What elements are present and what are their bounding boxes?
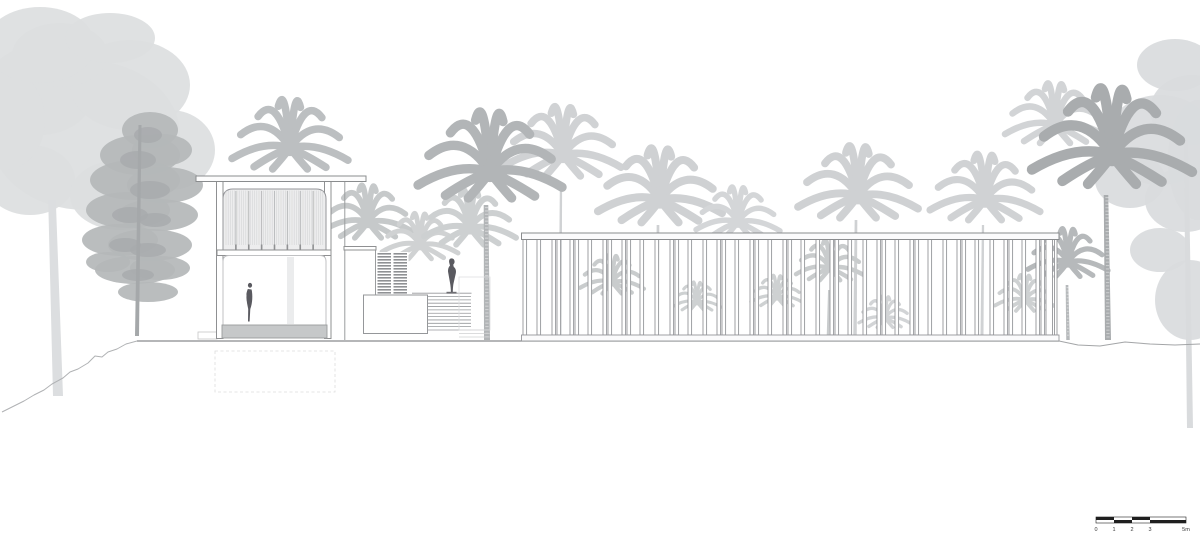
- colonnade-beam: [522, 233, 1060, 240]
- statue: [447, 258, 457, 293]
- colonnade-post: [750, 240, 754, 336]
- colonnade-post: [655, 240, 659, 336]
- colonnade-post: [1004, 240, 1008, 336]
- elevation-canvas: 01235m: [0, 0, 1200, 543]
- colonnade-post: [570, 240, 574, 336]
- colonnade-post: [816, 240, 820, 336]
- colonnade-post: [910, 240, 914, 336]
- colonnade-end-post: [1055, 240, 1058, 336]
- colonnade-post: [608, 240, 612, 336]
- ground-line-right: [1059, 341, 1200, 346]
- colonnade-post: [575, 240, 579, 336]
- canopy-roof: [344, 247, 376, 251]
- colonnade-post: [670, 240, 674, 336]
- scale-label: 0: [1094, 527, 1097, 533]
- colonnade-post: [722, 240, 726, 336]
- side-step: [198, 332, 217, 339]
- colonnade-post: [603, 240, 607, 336]
- colonnade-post-wide: [1046, 240, 1053, 336]
- colonnade-post: [622, 240, 626, 336]
- scale-label: 1: [1112, 527, 1115, 533]
- ground-lines: [2, 341, 1200, 412]
- plinth: [222, 325, 327, 338]
- colonnade-post: [962, 240, 966, 336]
- palm-tree: [673, 282, 721, 311]
- colonnade-post: [688, 240, 692, 336]
- colonnade-base-rail: [522, 335, 1060, 341]
- palm-tree: [696, 187, 780, 237]
- colonnade-post: [915, 240, 919, 336]
- colonnade-post: [1036, 240, 1040, 336]
- colonnade-post: [1009, 240, 1013, 336]
- scale-label: 2: [1130, 527, 1133, 533]
- colonnade-post: [975, 240, 979, 336]
- colonnade-post: [537, 240, 541, 336]
- right-broadleaf-tree: [1095, 39, 1200, 428]
- colonnade-post: [703, 240, 707, 336]
- statue-base: [447, 292, 457, 294]
- colonnade-post: [1022, 240, 1026, 336]
- glazed-opening: [223, 256, 326, 326]
- pavilion-roof: [196, 176, 366, 182]
- garden-wall: [364, 295, 428, 334]
- colonnade-post: [788, 240, 792, 336]
- colonnade-post: [877, 240, 881, 336]
- colonnade-post: [848, 240, 852, 336]
- colonnade-post: [895, 240, 899, 336]
- elevation-drawing: 01235m: [0, 0, 1200, 543]
- colonnade-post: [830, 240, 834, 336]
- colonnade-post: [835, 240, 839, 336]
- colonnade-post: [552, 240, 556, 336]
- colonnade-post: [882, 240, 886, 336]
- colonnade-post: [640, 240, 644, 336]
- colonnade-post: [627, 240, 631, 336]
- colonnade-post: [1041, 240, 1045, 336]
- colonnade-post: [588, 240, 592, 336]
- colonnade-post: [768, 240, 772, 336]
- colonnade-post: [957, 240, 961, 336]
- terrain-slope-line: [2, 341, 137, 412]
- colonnade-post: [863, 240, 867, 336]
- steps: [428, 297, 472, 331]
- colonnade-post: [523, 240, 527, 336]
- colonnade-post: [943, 240, 947, 336]
- colonnade-post: [717, 240, 721, 336]
- palm-trunk-behind-glass: [287, 257, 294, 324]
- colonnade-post: [928, 240, 932, 336]
- hidden-basement-outline: [215, 351, 335, 392]
- colonnade-post: [783, 240, 787, 336]
- colonnade-post: [735, 240, 739, 336]
- scale-label: 5m: [1182, 527, 1190, 533]
- colonnade-post: [675, 240, 679, 336]
- pavilion-column: [217, 182, 224, 339]
- colonnade-post: [755, 240, 759, 336]
- scale-label: 3: [1148, 527, 1151, 533]
- palm-tree: [232, 100, 348, 169]
- colonnade-post: [557, 240, 561, 336]
- colonnade-post: [990, 240, 994, 336]
- scale-bar: 01235m: [1094, 517, 1190, 533]
- transom-rail: [217, 250, 331, 256]
- colonnade-post: [801, 240, 805, 336]
